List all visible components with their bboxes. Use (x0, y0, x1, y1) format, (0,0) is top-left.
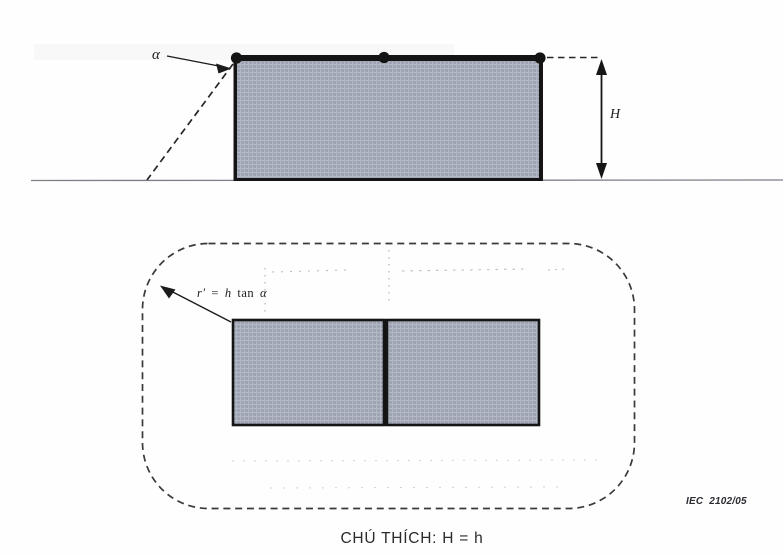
svg-text:α: α (152, 47, 161, 63)
svg-text:H: H (609, 107, 621, 122)
svg-text:IEC 2102/05: IEC 2102/05 (686, 496, 747, 507)
svg-text:r′ = h tan α: r′ = h tan α (197, 286, 267, 300)
svg-text:CHÚ THÍCH: H = h: CHÚ THÍCH: H = h (340, 530, 483, 547)
